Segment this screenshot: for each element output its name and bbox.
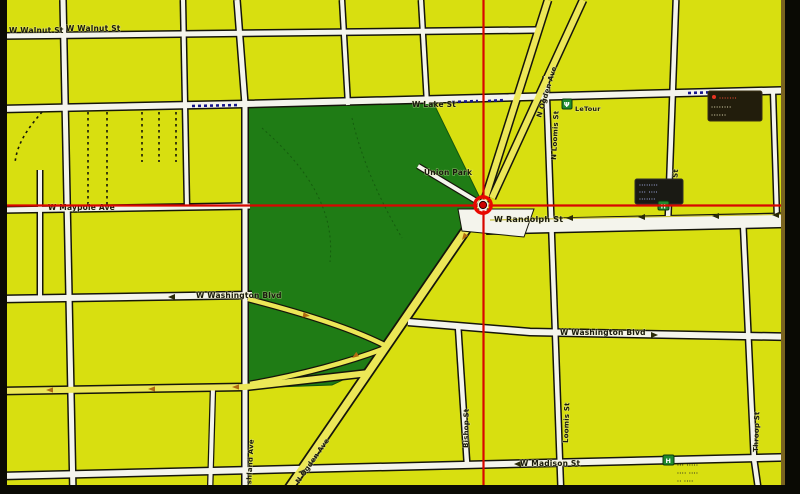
- label-union-park: Union Park: [424, 168, 473, 177]
- label-bishop: Bishop St: [462, 408, 471, 448]
- poi-br-line1: ··· ·····: [677, 463, 698, 469]
- poi-letour-label: LeTour: [575, 105, 601, 113]
- label-walnut-w: W Walnut St: [9, 26, 64, 35]
- poi-br-line3: ·· ····: [677, 479, 694, 485]
- label-washington-w: W Washington Blvd: [196, 291, 282, 300]
- poi-top-right-line2: ········: [711, 105, 732, 111]
- label-washington-e: W Washington Blvd: [560, 328, 646, 337]
- label-lake: W Lake St: [412, 100, 456, 109]
- poi-ada-line1: ········: [639, 183, 658, 189]
- label-loomis-s: Loomis St: [562, 402, 571, 443]
- poi-br-line2: ···· ····: [677, 471, 698, 477]
- label-randolph: W Randolph St: [494, 215, 563, 224]
- poi-top-right-line3: ······: [711, 113, 727, 119]
- poi-top-right: ······· ········ ······: [708, 91, 762, 121]
- label-maypole: W Maypole Ave: [48, 203, 115, 212]
- label-madison: W Madison St: [520, 459, 581, 468]
- label-walnut-e: W Walnut St: [66, 24, 121, 33]
- poi-top-right-line1: ·······: [719, 96, 737, 102]
- poi-ada-line2: ··· ····: [639, 190, 658, 196]
- restaurant-icon-glyph: Ψ: [564, 101, 570, 109]
- hospital-icon-2-glyph: H: [666, 457, 672, 465]
- label-throop: Throop St: [752, 411, 761, 452]
- poi-red-dot-icon: [712, 95, 716, 99]
- map-viewport[interactable]: W Walnut St W Walnut St W Lake St W Mayp…: [0, 0, 800, 494]
- map-canvas[interactable]: W Walnut St W Walnut St W Lake St W Mayp…: [0, 0, 800, 494]
- poi-ada-line3: ·······: [639, 197, 656, 203]
